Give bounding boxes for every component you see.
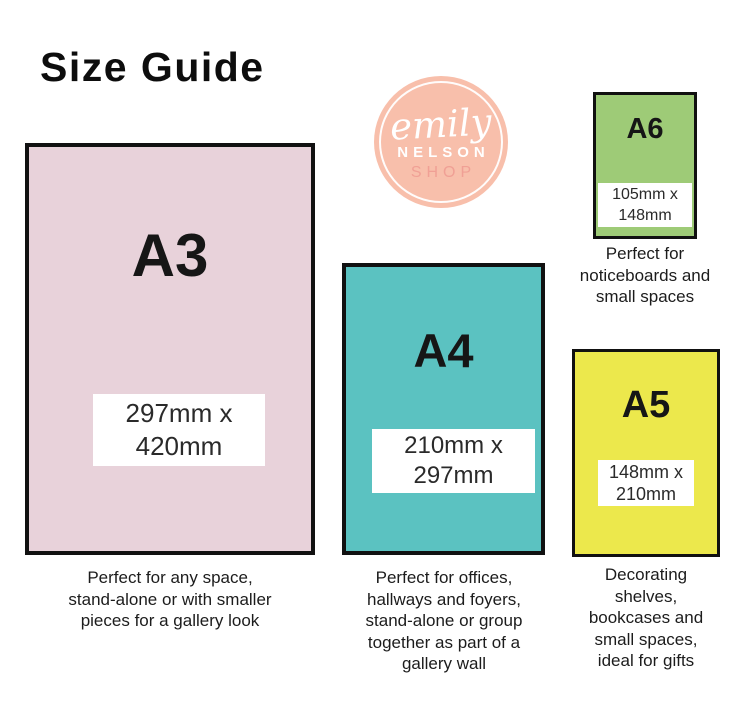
shop-logo: emily NELSON SHOP — [374, 76, 508, 208]
paper-a6-caption: Perfect for noticeboards and small space… — [566, 243, 724, 308]
logo-script-text: emily — [390, 107, 493, 142]
paper-a5-dimensions: 148mm x 210mm — [598, 460, 694, 506]
page-title: Size Guide — [40, 44, 265, 91]
paper-a3-label: A3 — [29, 221, 311, 290]
paper-a5-label: A5 — [575, 384, 717, 427]
paper-a3-caption: Perfect for any space, stand-alone or wi… — [25, 567, 315, 632]
paper-a4-caption: Perfect for offices, hallways and foyers… — [333, 567, 555, 675]
paper-a5: A5 148mm x 210mm — [572, 349, 720, 557]
paper-a4-label: A4 — [346, 323, 541, 378]
paper-a6-dimensions: 105mm x 148mm — [598, 183, 692, 227]
paper-a6: A6 105mm x 148mm — [593, 92, 697, 239]
size-guide-infographic: Size Guide emily NELSON SHOP A3 297mm x … — [0, 0, 740, 709]
paper-a3-dimensions: 297mm x 420mm — [93, 394, 265, 466]
paper-a5-caption: Decorating shelves, bookcases and small … — [571, 564, 721, 672]
paper-a3: A3 297mm x 420mm — [25, 143, 315, 555]
paper-a6-label: A6 — [596, 113, 694, 146]
paper-a4-dimensions: 210mm x 297mm — [372, 429, 535, 493]
paper-a4: A4 210mm x 297mm — [342, 263, 545, 555]
